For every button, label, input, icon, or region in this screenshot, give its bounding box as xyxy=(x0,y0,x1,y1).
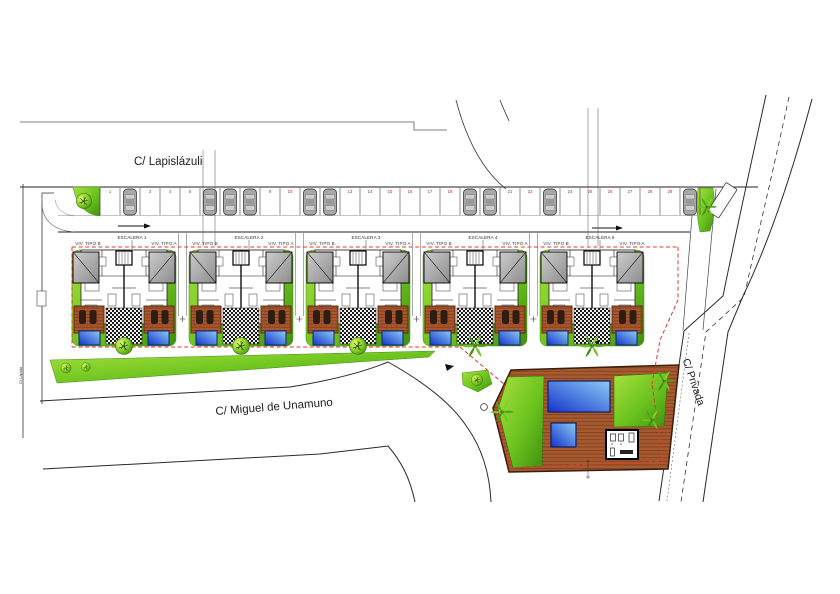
stall-number: 18 xyxy=(448,189,453,194)
duplex-block-1 xyxy=(72,250,176,346)
stall-number: 16 xyxy=(408,189,413,194)
unit-label-tipo-b: VIV. TIPO B xyxy=(192,241,218,246)
stall-number: 1 xyxy=(109,189,112,194)
stall-number: 26 xyxy=(608,189,613,194)
parked-car xyxy=(204,189,217,215)
curb-cut xyxy=(37,291,46,306)
parked-car xyxy=(544,189,557,215)
street-label-left-small: C/ Lápida xyxy=(18,367,23,384)
stair-label: ESCALERA 4 xyxy=(468,235,497,240)
stall-number: 24 xyxy=(568,189,573,194)
round-tree xyxy=(82,363,91,372)
parked-car xyxy=(304,189,317,215)
unit-label-tipo-a: VIV. TIPO A xyxy=(619,241,644,246)
round-tree xyxy=(350,338,367,355)
parked-car xyxy=(244,189,257,215)
unit-label-tipo-b: VIV. TIPO B xyxy=(426,241,452,246)
parking-row: 1234567891011121314151617181920212223242… xyxy=(100,188,700,215)
stall-number: 4 xyxy=(169,189,172,194)
round-tree xyxy=(233,338,250,355)
round-tree xyxy=(471,374,483,386)
stall-number: 10 xyxy=(288,189,293,194)
unit-label-tipo-b: VIV. TIPO B xyxy=(543,241,569,246)
stall-number: 25 xyxy=(588,189,593,194)
parked-car xyxy=(464,189,477,215)
north-access-curve xyxy=(456,100,506,189)
communal-pool-large xyxy=(548,381,610,412)
right-street-east-curb xyxy=(703,99,812,502)
site-plan-drawing: 1234567891011121314151617181920212223242… xyxy=(0,0,840,594)
stall-number: 27 xyxy=(628,189,633,194)
duplex-block-5 xyxy=(540,250,644,346)
round-tree xyxy=(116,338,133,355)
top-street-north-curb xyxy=(20,122,447,130)
stall-number: 3 xyxy=(149,189,152,194)
stall-number: 15 xyxy=(388,189,393,194)
right-street-centerline xyxy=(681,97,789,502)
housing-blocks xyxy=(72,240,644,346)
site-plan: 1234567891011121314151617181920212223242… xyxy=(0,0,840,594)
unit-label-tipo-a: VIV. TIPO A xyxy=(268,241,293,246)
south-lawn-strip xyxy=(50,351,435,383)
stall-number: 28 xyxy=(648,189,653,194)
entrance-arrow xyxy=(445,364,454,371)
stair-label: ESCALERA 1 xyxy=(117,235,146,240)
stall-number: 22 xyxy=(528,189,533,194)
round-tree xyxy=(76,193,91,208)
communal-pool-small xyxy=(551,423,576,447)
stair-label: ESCALERA 5 xyxy=(585,235,614,240)
stall-number: 21 xyxy=(508,189,513,194)
stall-number: 29 xyxy=(668,189,673,194)
unit-label-tipo-a: VIV. TIPO A xyxy=(385,241,410,246)
stall-number: 14 xyxy=(368,189,373,194)
stall-number: 9 xyxy=(269,189,272,194)
unit-label-tipo-a: VIV. TIPO A xyxy=(502,241,527,246)
parked-car xyxy=(224,189,237,215)
stair-label: ESCALERA 3 xyxy=(351,235,380,240)
unit-label-tipo-a: VIV. TIPO A xyxy=(151,241,176,246)
unit-label-tipo-b: VIV. TIPO B xyxy=(309,241,335,246)
bottom-street-north-curb xyxy=(40,362,491,502)
duplex-block-2 xyxy=(189,250,293,346)
duplex-block-3 xyxy=(306,250,410,346)
street-label-lapislazuli: C/ Lapislázuli xyxy=(134,156,202,168)
manhole xyxy=(481,404,488,411)
section-callout-lines xyxy=(203,108,598,246)
stall-number: 5 xyxy=(189,189,192,194)
parked-car xyxy=(484,189,497,215)
corner-arc xyxy=(42,206,75,232)
round-tree xyxy=(61,363,71,373)
stair-label: ESCALERA 2 xyxy=(234,235,263,240)
parked-car xyxy=(324,189,337,215)
parked-car xyxy=(684,189,697,215)
duplex-block-4 xyxy=(423,250,527,346)
parked-car xyxy=(124,189,137,215)
unit-label-tipo-b: VIV. TIPO B xyxy=(75,241,101,246)
stall-number: 17 xyxy=(428,189,433,194)
bottom-street-south-curb xyxy=(43,446,415,502)
stall-number: 13 xyxy=(348,189,353,194)
pool-house xyxy=(606,430,638,459)
